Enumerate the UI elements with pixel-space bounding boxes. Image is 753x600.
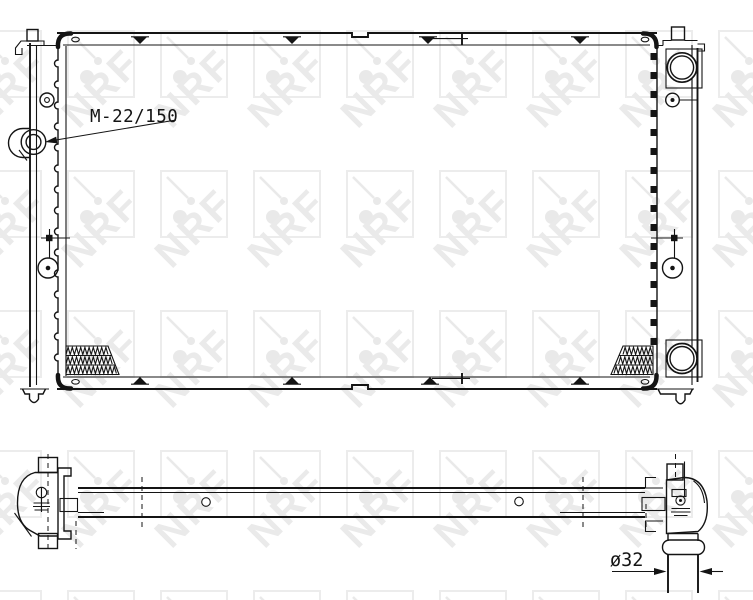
left-tank — [9, 30, 71, 403]
right-tank-boss — [666, 93, 698, 107]
right-tank-top-tab — [672, 27, 685, 40]
right-mounting-point — [651, 229, 683, 278]
left-fitting-clamp — [60, 499, 78, 512]
side-view-body — [78, 488, 645, 517]
valve-body — [672, 490, 686, 497]
right-tank — [651, 27, 705, 404]
core-fins-right — [611, 346, 653, 375]
top-strip-slot-right — [641, 37, 649, 42]
left-tank-boss — [40, 93, 54, 107]
dimension-arrow-left — [654, 568, 667, 575]
leader-arrowhead — [45, 137, 57, 144]
right-bottom-foot — [656, 389, 694, 404]
radiator-front-view: M-22/150 — [9, 27, 705, 404]
filler-neck-m22 — [9, 129, 46, 161]
left-bottom-foot — [20, 389, 49, 403]
left-tank-serrated-edge — [55, 46, 59, 376]
pipe-diameter-label: ø32 — [610, 550, 643, 571]
bottom-strip-slot-right — [641, 380, 649, 385]
center-lines — [48, 454, 676, 553]
technical-drawing-canvas: NRFNRFNRFNRFNRFNRFNRFNRFNRFNRFNRFNRFNRFN… — [0, 0, 753, 600]
right-fitting-clamp — [642, 498, 665, 511]
top-strip-markers — [131, 34, 589, 45]
radiator-technical-drawing: M-22/150 — [0, 0, 753, 600]
top-header-strip — [57, 33, 657, 47]
bottom-strip-slot-left — [72, 380, 80, 385]
top-strip-slot-left — [72, 37, 80, 42]
core-fins-left — [66, 346, 119, 375]
left-tank-top-tab — [27, 30, 38, 42]
right-end-fitting — [642, 462, 707, 594]
pipe-collar — [663, 540, 705, 555]
right-tank-clinch-tabs — [651, 53, 658, 345]
thread-size-callout: M-22/150 — [45, 107, 178, 143]
body-hole-right — [515, 497, 524, 506]
bottom-strip-markers — [131, 373, 589, 384]
outlet-pipe — [663, 534, 705, 594]
body-hole-left — [202, 498, 211, 507]
thread-size-label: M-22/150 — [90, 107, 178, 127]
left-end-fitting — [15, 458, 78, 549]
bottom-strip — [57, 373, 657, 389]
radiator-side-view: ø32 — [15, 454, 724, 593]
dimension-arrow-right — [700, 568, 713, 575]
